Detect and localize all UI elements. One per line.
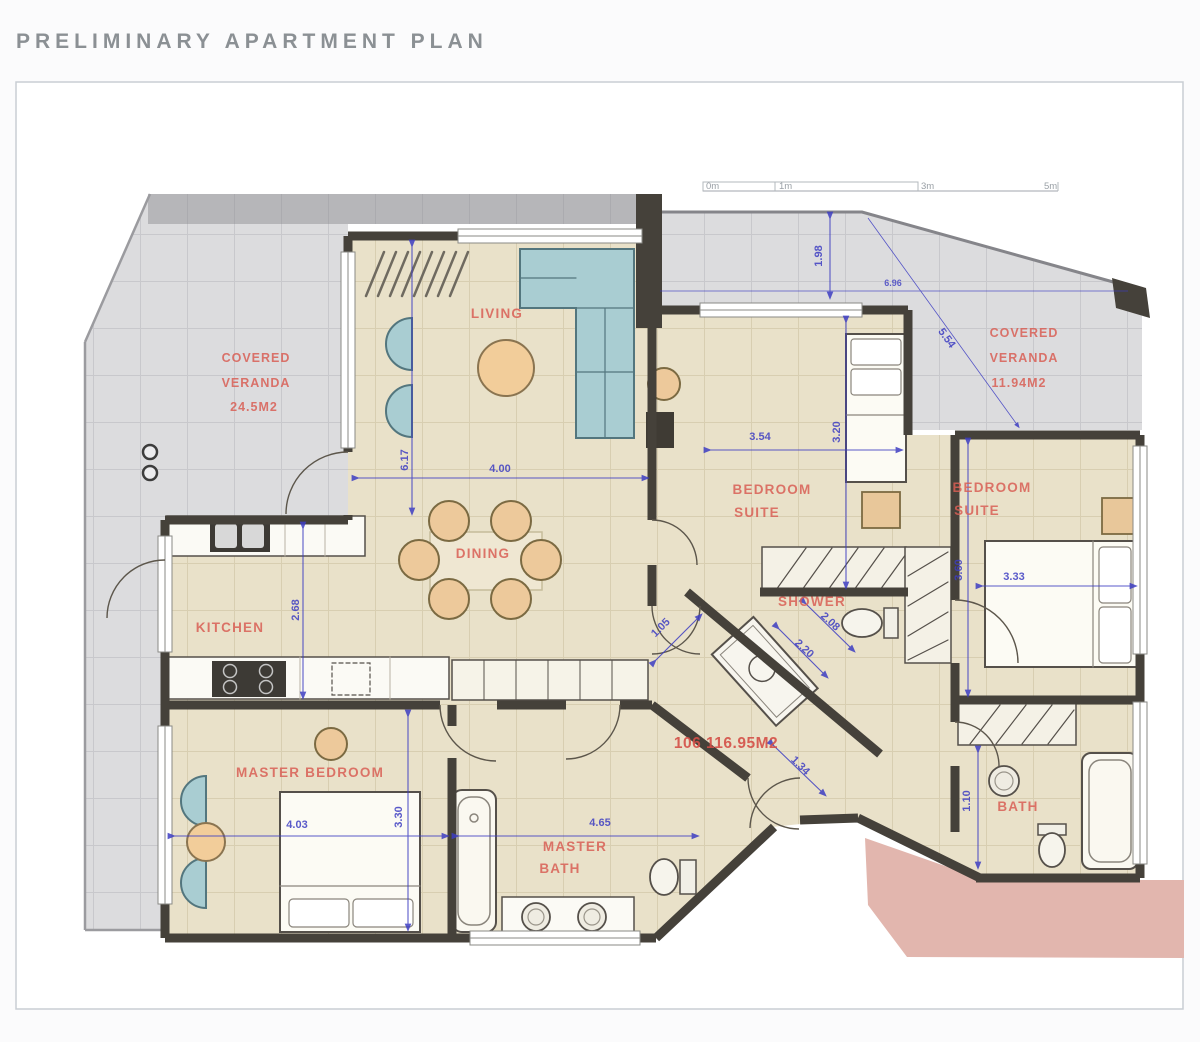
label-suite1-1: BEDROOM — [733, 482, 812, 497]
sink — [578, 903, 606, 931]
label-veranda-left-area: 24.5M2 — [230, 400, 278, 414]
stool — [315, 728, 347, 760]
dining-chair — [491, 579, 531, 619]
pillow — [1099, 547, 1131, 603]
floor-plan: 0m 1m 3m 5m — [0, 0, 1200, 1042]
dining-chair — [399, 540, 439, 580]
nightstand — [862, 492, 900, 528]
pillow — [353, 899, 413, 927]
sink — [989, 766, 1019, 796]
dim-veranda-depth: 1.98 — [813, 245, 825, 266]
label-suite2-2: SUITE — [954, 503, 1000, 518]
label-veranda-left-2: VERANDA — [222, 376, 291, 390]
dim-living-width: 4.00 — [489, 463, 510, 475]
label-shower: SHOWER — [778, 594, 846, 609]
toilet-tank — [680, 860, 696, 894]
dim-veranda-width: 6.96 — [884, 278, 902, 288]
stove — [212, 661, 286, 697]
scale-5m: 5m — [1044, 181, 1057, 192]
sink — [522, 903, 550, 931]
page: PRELIMINARY APARTMENT PLAN 0m 1m — [0, 0, 1200, 1042]
label-veranda-left-1: COVERED — [222, 351, 291, 365]
dim-kitchen-depth: 2.68 — [290, 599, 302, 620]
side-table — [187, 823, 225, 861]
dim-suite2-depth: 3.60 — [953, 559, 965, 580]
dining-chair — [491, 501, 531, 541]
dim-master-width: 4.03 — [286, 819, 307, 831]
label-master-bedroom: MASTER BEDROOM — [236, 765, 384, 780]
toilet — [650, 859, 678, 895]
kitchen-counter — [167, 657, 449, 699]
pillow — [851, 339, 901, 365]
dining-chair — [429, 501, 469, 541]
label-kitchen: KITCHEN — [196, 620, 264, 635]
scale-0m: 0m — [706, 181, 719, 192]
label-bath: BATH — [997, 799, 1038, 814]
label-master-bath-2: BATH — [539, 861, 580, 876]
toilet-tank — [884, 608, 898, 638]
label-master-bath-1: MASTER — [543, 839, 607, 854]
label-living: LIVING — [471, 306, 523, 321]
label-veranda-right-area: 11.94M2 — [992, 376, 1047, 390]
dining-chair — [521, 540, 561, 580]
cabinet-row — [452, 660, 648, 700]
label-veranda-right-2: VERANDA — [990, 351, 1059, 365]
scale-3m: 3m — [921, 181, 934, 192]
toilet — [1039, 833, 1065, 867]
coffee-table — [478, 340, 534, 396]
dim-bath-width: 1.10 — [961, 790, 973, 811]
dim-suite1-width: 3.54 — [749, 431, 771, 443]
toilet — [842, 609, 882, 637]
scale-1m: 1m — [779, 181, 792, 192]
bathtub — [1082, 753, 1138, 869]
pillow — [851, 369, 901, 395]
label-veranda-right-1: COVERED — [990, 326, 1059, 340]
wall-chunk — [636, 194, 662, 328]
dim-living-depth: 6.17 — [399, 449, 411, 470]
label-dining: DINING — [456, 546, 510, 561]
label-suite1-2: SUITE — [734, 505, 780, 520]
veranda-column — [143, 466, 157, 480]
label-unit-area: 106 116.95M2 — [674, 735, 778, 752]
closet — [958, 703, 1076, 745]
veranda-column — [143, 445, 157, 459]
dim-master-depth: 3.30 — [393, 806, 405, 827]
dim-suite2-width: 3.33 — [1003, 571, 1024, 583]
dining-chair — [429, 579, 469, 619]
label-suite2-1: BEDROOM — [953, 480, 1032, 495]
pillow — [1099, 607, 1131, 663]
dim-master-bath-width: 4.65 — [589, 817, 610, 829]
pillow — [289, 899, 349, 927]
dim-suite1-depth: 3.20 — [831, 421, 843, 442]
